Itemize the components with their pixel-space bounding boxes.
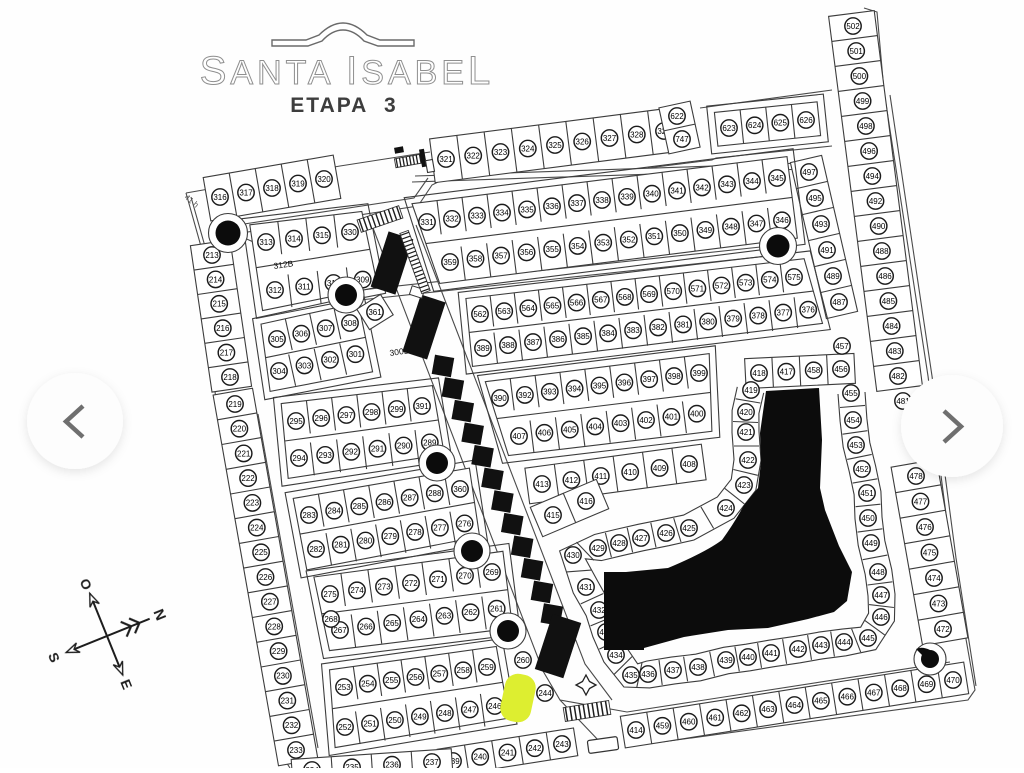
svg-text:496: 496 (862, 147, 876, 156)
svg-text:400: 400 (690, 410, 704, 419)
svg-text:626: 626 (799, 116, 813, 125)
svg-text:389: 389 (476, 344, 490, 353)
svg-text:399: 399 (692, 369, 706, 378)
svg-text:430: 430 (566, 551, 580, 560)
svg-text:498: 498 (859, 122, 873, 131)
svg-text:228: 228 (268, 622, 282, 631)
svg-text:236: 236 (385, 761, 399, 769)
svg-text:464: 464 (788, 701, 802, 710)
svg-text:257: 257 (433, 670, 447, 679)
svg-text:404: 404 (589, 422, 603, 431)
svg-text:301: 301 (349, 350, 363, 359)
svg-text:438: 438 (691, 663, 705, 672)
svg-text:326: 326 (576, 137, 590, 146)
svg-text:406: 406 (538, 429, 552, 438)
svg-text:227: 227 (263, 598, 277, 607)
svg-text:625: 625 (774, 119, 788, 128)
svg-text:351: 351 (648, 232, 662, 241)
svg-text:327: 327 (603, 134, 617, 143)
svg-text:338: 338 (595, 196, 609, 205)
svg-text:274: 274 (350, 586, 364, 595)
svg-text:281: 281 (334, 541, 348, 550)
svg-text:324: 324 (521, 144, 535, 153)
svg-text:315: 315 (315, 231, 329, 240)
svg-text:222: 222 (241, 474, 255, 483)
svg-text:357: 357 (494, 252, 508, 261)
svg-text:319: 319 (291, 179, 305, 188)
svg-text:482: 482 (891, 372, 905, 381)
svg-text:256: 256 (409, 673, 423, 682)
svg-text:215: 215 (213, 300, 227, 309)
svg-text:439: 439 (719, 656, 733, 665)
svg-text:449: 449 (864, 539, 878, 548)
svg-text:325: 325 (548, 141, 562, 150)
svg-text:493: 493 (814, 220, 828, 229)
svg-text:355: 355 (546, 245, 560, 254)
svg-text:390: 390 (493, 394, 507, 403)
svg-text:416: 416 (579, 497, 593, 506)
svg-text:500: 500 (853, 72, 867, 81)
svg-text:575: 575 (787, 273, 801, 282)
svg-text:450: 450 (861, 514, 875, 523)
svg-text:343: 343 (720, 180, 734, 189)
svg-text:491: 491 (820, 246, 834, 255)
svg-text:320: 320 (317, 175, 331, 184)
svg-text:414: 414 (629, 726, 643, 735)
svg-text:339: 339 (620, 193, 634, 202)
svg-text:305: 305 (270, 335, 284, 344)
svg-text:296: 296 (315, 414, 329, 423)
svg-text:425: 425 (682, 524, 696, 533)
svg-text:247: 247 (463, 705, 477, 714)
svg-text:268: 268 (324, 615, 338, 624)
svg-text:280: 280 (359, 536, 373, 545)
svg-text:335: 335 (520, 205, 534, 214)
svg-text:260: 260 (516, 656, 530, 665)
svg-text:573: 573 (739, 279, 753, 288)
svg-text:624: 624 (748, 121, 762, 130)
svg-text:413: 413 (535, 480, 549, 489)
svg-text:410: 410 (624, 468, 638, 477)
svg-text:476: 476 (918, 523, 932, 532)
svg-text:395: 395 (593, 381, 607, 390)
svg-text:421: 421 (739, 428, 753, 437)
svg-text:394: 394 (568, 385, 582, 394)
svg-text:261: 261 (490, 605, 504, 614)
svg-text:385: 385 (576, 332, 590, 341)
svg-text:273: 273 (377, 583, 391, 592)
svg-text:287: 287 (403, 494, 417, 503)
svg-text:337: 337 (570, 199, 584, 208)
svg-text:564: 564 (522, 304, 536, 313)
svg-text:259: 259 (480, 663, 494, 672)
svg-text:563: 563 (498, 307, 512, 316)
svg-text:279: 279 (384, 532, 398, 541)
svg-text:459: 459 (656, 722, 670, 731)
svg-text:447: 447 (874, 591, 888, 600)
svg-text:495: 495 (808, 194, 822, 203)
svg-text:353: 353 (597, 239, 611, 248)
svg-text:402: 402 (639, 416, 653, 425)
svg-text:422: 422 (741, 456, 755, 465)
svg-text:341: 341 (670, 187, 684, 196)
svg-text:419: 419 (744, 386, 758, 395)
svg-text:570: 570 (667, 287, 681, 296)
svg-text:308: 308 (343, 319, 357, 328)
svg-text:249: 249 (413, 712, 427, 721)
svg-text:333: 333 (470, 212, 484, 221)
svg-text:492: 492 (869, 197, 883, 206)
svg-text:452: 452 (855, 465, 869, 474)
svg-text:486: 486 (878, 272, 892, 281)
svg-text:488: 488 (875, 247, 889, 256)
svg-text:276: 276 (458, 519, 472, 528)
svg-text:502: 502 (846, 22, 860, 31)
svg-text:472: 472 (936, 625, 950, 634)
svg-text:217: 217 (220, 349, 234, 358)
svg-text:262: 262 (464, 608, 478, 617)
svg-text:352: 352 (622, 235, 636, 244)
svg-text:465: 465 (814, 697, 828, 706)
svg-text:379: 379 (727, 314, 741, 323)
svg-text:623: 623 (722, 124, 736, 133)
svg-text:435: 435 (624, 671, 638, 680)
svg-text:487: 487 (832, 298, 846, 307)
svg-text:323: 323 (494, 148, 508, 157)
svg-text:451: 451 (860, 489, 874, 498)
svg-text:302: 302 (323, 356, 337, 365)
svg-text:376: 376 (802, 306, 816, 315)
svg-text:440: 440 (741, 653, 755, 662)
svg-text:428: 428 (612, 539, 626, 548)
svg-text:361: 361 (368, 308, 382, 317)
svg-text:270: 270 (458, 572, 472, 581)
svg-text:453: 453 (849, 441, 863, 450)
svg-text:497: 497 (802, 168, 816, 177)
svg-text:334: 334 (495, 209, 509, 218)
svg-text:415: 415 (546, 511, 560, 520)
svg-text:223: 223 (246, 499, 260, 508)
svg-text:358: 358 (469, 255, 483, 264)
svg-text:407: 407 (512, 432, 526, 441)
svg-text:293: 293 (319, 451, 333, 460)
svg-text:295: 295 (289, 417, 303, 426)
svg-text:566: 566 (570, 299, 584, 308)
svg-text:431: 431 (579, 583, 593, 592)
svg-text:267: 267 (333, 626, 347, 635)
svg-text:286: 286 (378, 498, 392, 507)
svg-text:477: 477 (914, 497, 928, 506)
svg-text:468: 468 (894, 684, 908, 693)
svg-text:622: 622 (670, 112, 684, 121)
svg-text:272: 272 (404, 579, 418, 588)
svg-text:332: 332 (445, 215, 459, 224)
svg-text:356: 356 (520, 248, 534, 257)
svg-text:316: 316 (213, 193, 227, 202)
svg-text:292: 292 (345, 448, 359, 457)
svg-text:348: 348 (724, 223, 738, 232)
svg-text:429: 429 (591, 544, 605, 553)
svg-text:474: 474 (927, 574, 941, 583)
svg-text:307: 307 (319, 324, 333, 333)
svg-text:441: 441 (764, 649, 778, 658)
svg-text:306: 306 (295, 330, 309, 339)
svg-text:420: 420 (739, 408, 753, 417)
svg-text:277: 277 (433, 524, 447, 533)
svg-text:304: 304 (272, 367, 286, 376)
svg-text:427: 427 (634, 534, 648, 543)
svg-text:350: 350 (673, 229, 687, 238)
svg-text:283: 283 (302, 511, 316, 520)
svg-text:258: 258 (457, 666, 471, 675)
svg-text:317: 317 (239, 188, 253, 197)
svg-text:396: 396 (618, 378, 632, 387)
svg-text:381: 381 (676, 320, 690, 329)
svg-text:214: 214 (209, 275, 223, 284)
svg-text:501: 501 (850, 47, 864, 56)
svg-text:382: 382 (651, 323, 665, 332)
svg-text:470: 470 (946, 676, 960, 685)
svg-text:251: 251 (363, 719, 377, 728)
svg-text:224: 224 (250, 524, 264, 533)
svg-text:562: 562 (473, 310, 487, 319)
svg-text:443: 443 (814, 641, 828, 650)
svg-text:221: 221 (237, 449, 251, 458)
svg-text:485: 485 (882, 297, 896, 306)
svg-text:388: 388 (501, 341, 515, 350)
svg-text:467: 467 (867, 688, 881, 697)
svg-text:378: 378 (752, 312, 766, 321)
svg-text:490: 490 (872, 222, 886, 231)
svg-text:243: 243 (555, 740, 569, 749)
svg-text:231: 231 (281, 697, 295, 706)
svg-text:417: 417 (780, 368, 794, 377)
svg-text:383: 383 (626, 326, 640, 335)
svg-text:318: 318 (265, 184, 279, 193)
svg-text:462: 462 (735, 709, 749, 718)
svg-text:423: 423 (737, 481, 751, 490)
svg-text:291: 291 (371, 445, 385, 454)
svg-text:346: 346 (775, 216, 789, 225)
svg-text:398: 398 (667, 372, 681, 381)
svg-text:303: 303 (298, 361, 312, 370)
svg-text:574: 574 (763, 276, 777, 285)
svg-text:290: 290 (397, 441, 411, 450)
svg-text:424: 424 (719, 504, 733, 513)
svg-text:269: 269 (485, 568, 499, 577)
svg-text:225: 225 (254, 548, 268, 557)
svg-text:263: 263 (438, 612, 452, 621)
svg-text:242: 242 (528, 744, 542, 753)
svg-text:345: 345 (770, 174, 784, 183)
svg-text:499: 499 (856, 97, 870, 106)
svg-text:285: 285 (353, 502, 367, 511)
svg-text:322: 322 (467, 151, 481, 160)
svg-text:360: 360 (453, 485, 467, 494)
svg-text:568: 568 (618, 293, 632, 302)
svg-text:344: 344 (745, 177, 759, 186)
svg-text:282: 282 (309, 545, 323, 554)
svg-text:446: 446 (874, 613, 888, 622)
svg-text:255: 255 (385, 676, 399, 685)
svg-text:232: 232 (285, 721, 299, 730)
svg-text:230: 230 (276, 672, 290, 681)
svg-text:294: 294 (292, 454, 306, 463)
svg-text:409: 409 (653, 464, 667, 473)
svg-text:250: 250 (388, 716, 402, 725)
svg-text:312: 312 (268, 286, 282, 295)
svg-text:569: 569 (642, 290, 656, 299)
svg-text:313: 313 (259, 238, 273, 247)
svg-text:342: 342 (695, 183, 709, 192)
svg-text:233: 233 (289, 746, 303, 755)
svg-text:426: 426 (659, 529, 673, 538)
svg-text:463: 463 (761, 705, 775, 714)
svg-text:747: 747 (675, 135, 689, 144)
svg-text:218: 218 (223, 373, 237, 382)
svg-text:405: 405 (563, 426, 577, 435)
svg-text:328: 328 (630, 130, 644, 139)
svg-text:445: 445 (861, 634, 875, 643)
svg-text:380: 380 (701, 317, 715, 326)
svg-text:349: 349 (699, 226, 713, 235)
svg-text:458: 458 (807, 366, 821, 375)
svg-text:483: 483 (888, 347, 902, 356)
svg-text:284: 284 (328, 507, 342, 516)
svg-text:359: 359 (443, 258, 457, 267)
svg-text:455: 455 (844, 389, 858, 398)
svg-text:216: 216 (216, 324, 230, 333)
svg-text:241: 241 (501, 748, 515, 757)
svg-text:436: 436 (641, 670, 655, 679)
svg-text:391: 391 (415, 402, 429, 411)
svg-text:386: 386 (551, 335, 565, 344)
svg-text:457: 457 (835, 342, 849, 351)
svg-text:408: 408 (682, 460, 696, 469)
svg-text:418: 418 (752, 369, 766, 378)
svg-text:229: 229 (272, 647, 286, 656)
svg-text:314: 314 (287, 235, 301, 244)
svg-text:298: 298 (365, 408, 379, 417)
svg-text:437: 437 (666, 666, 680, 675)
svg-text:461: 461 (709, 713, 723, 722)
svg-text:299: 299 (390, 405, 404, 414)
svg-text:354: 354 (571, 242, 585, 251)
svg-text:297: 297 (340, 411, 354, 420)
svg-text:466: 466 (841, 693, 855, 702)
svg-text:377: 377 (777, 309, 791, 318)
svg-text:494: 494 (866, 172, 880, 181)
svg-text:288: 288 (428, 489, 442, 498)
svg-text:213: 213 (205, 251, 219, 260)
svg-text:412: 412 (565, 476, 579, 485)
svg-text:331: 331 (420, 218, 434, 227)
svg-text:475: 475 (923, 548, 937, 557)
svg-text:246: 246 (488, 702, 502, 711)
svg-text:484: 484 (885, 322, 899, 331)
svg-text:478: 478 (909, 472, 923, 481)
svg-text:460: 460 (682, 718, 696, 727)
svg-text:442: 442 (791, 645, 805, 654)
svg-text:321: 321 (439, 155, 453, 164)
svg-text:393: 393 (543, 388, 557, 397)
svg-text:330: 330 (343, 228, 357, 237)
svg-text:384: 384 (601, 329, 615, 338)
svg-text:271: 271 (431, 575, 445, 584)
svg-text:456: 456 (834, 365, 848, 374)
svg-text:434: 434 (609, 651, 623, 660)
svg-text:253: 253 (337, 683, 351, 692)
svg-text:265: 265 (386, 619, 400, 628)
svg-text:266: 266 (359, 622, 373, 631)
svg-text:567: 567 (594, 296, 608, 305)
svg-text:448: 448 (871, 568, 885, 577)
svg-text:226: 226 (259, 573, 273, 582)
svg-text:235: 235 (345, 763, 359, 768)
svg-text:SANTA ISABEL: SANTA ISABEL (200, 49, 495, 93)
svg-text:278: 278 (408, 528, 422, 537)
svg-text:473: 473 (932, 599, 946, 608)
svg-text:264: 264 (412, 615, 426, 624)
svg-text:219: 219 (228, 400, 242, 409)
svg-text:252: 252 (338, 723, 352, 732)
svg-text:275: 275 (323, 590, 337, 599)
svg-text:489: 489 (826, 272, 840, 281)
svg-text:565: 565 (546, 301, 560, 310)
svg-text:403: 403 (614, 419, 628, 428)
svg-text:340: 340 (645, 190, 659, 199)
svg-text:311: 311 (298, 282, 311, 291)
svg-text:ETAPA 3: ETAPA 3 (290, 94, 397, 117)
svg-text:469: 469 (920, 680, 934, 689)
svg-text:401: 401 (665, 413, 679, 422)
svg-text:336: 336 (545, 202, 559, 211)
svg-text:392: 392 (518, 391, 532, 400)
svg-text:572: 572 (715, 281, 729, 290)
svg-text:254: 254 (361, 680, 375, 689)
svg-text:387: 387 (526, 338, 540, 347)
svg-text:454: 454 (846, 416, 860, 425)
svg-text:240: 240 (474, 753, 488, 762)
svg-text:220: 220 (233, 425, 247, 434)
svg-text:444: 444 (837, 638, 851, 647)
svg-text:248: 248 (438, 709, 452, 718)
svg-text:237: 237 (425, 758, 439, 767)
svg-text:244: 244 (538, 689, 552, 698)
svg-text:571: 571 (691, 284, 705, 293)
svg-text:347: 347 (750, 219, 764, 228)
svg-text:397: 397 (643, 375, 657, 384)
